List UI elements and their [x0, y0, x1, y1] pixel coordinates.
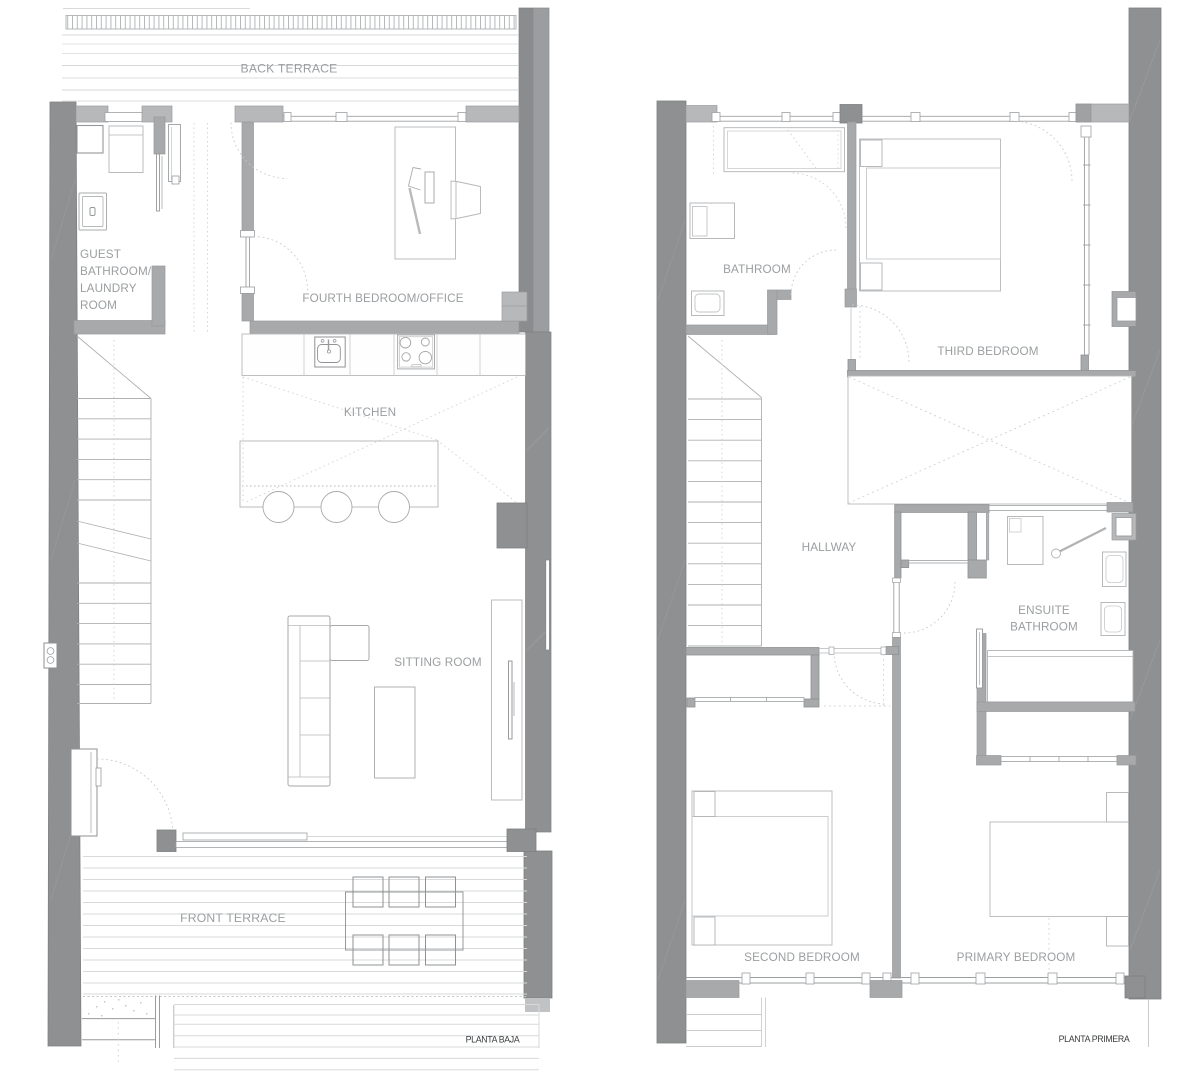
- svg-text:ROOM: ROOM: [80, 299, 117, 312]
- svg-text:LAUNDRY: LAUNDRY: [80, 282, 137, 295]
- svg-text:FOURTH BEDROOM/OFFICE: FOURTH BEDROOM/OFFICE: [302, 292, 463, 305]
- svg-text:BACK TERRACE: BACK TERRACE: [241, 62, 338, 76]
- svg-text:PLANTA PRIMERA: PLANTA PRIMERA: [1059, 1034, 1130, 1044]
- svg-text:BATHROOM: BATHROOM: [1010, 621, 1078, 634]
- svg-text:FRONT TERRACE: FRONT TERRACE: [180, 911, 286, 925]
- svg-text:BATHROOM: BATHROOM: [723, 263, 791, 276]
- svg-text:HALLWAY: HALLWAY: [802, 541, 857, 554]
- svg-text:PRIMARY BEDROOM: PRIMARY BEDROOM: [957, 951, 1076, 964]
- svg-text:ENSUITE: ENSUITE: [1018, 604, 1070, 617]
- svg-text:THIRD BEDROOM: THIRD BEDROOM: [937, 345, 1038, 358]
- svg-text:KITCHEN: KITCHEN: [344, 406, 396, 419]
- svg-text:SECOND BEDROOM: SECOND BEDROOM: [744, 951, 860, 964]
- svg-text:BATHROOM/: BATHROOM/: [80, 265, 152, 278]
- svg-text:GUEST: GUEST: [80, 248, 121, 261]
- svg-text:PLANTA BAJA: PLANTA BAJA: [466, 1035, 520, 1045]
- svg-text:SITTING ROOM: SITTING ROOM: [394, 656, 482, 669]
